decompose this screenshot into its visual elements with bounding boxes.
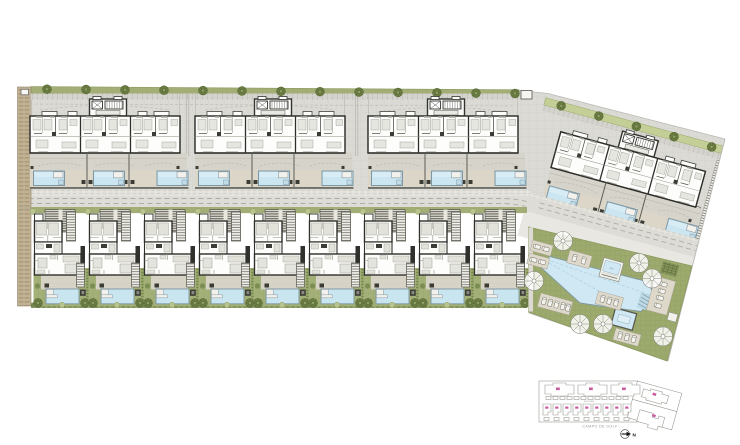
svg-text:CAMPO DE GOLF: CAMPO DE GOLF bbox=[582, 425, 618, 429]
svg-text:BULEVAR: BULEVAR bbox=[584, 400, 594, 403]
